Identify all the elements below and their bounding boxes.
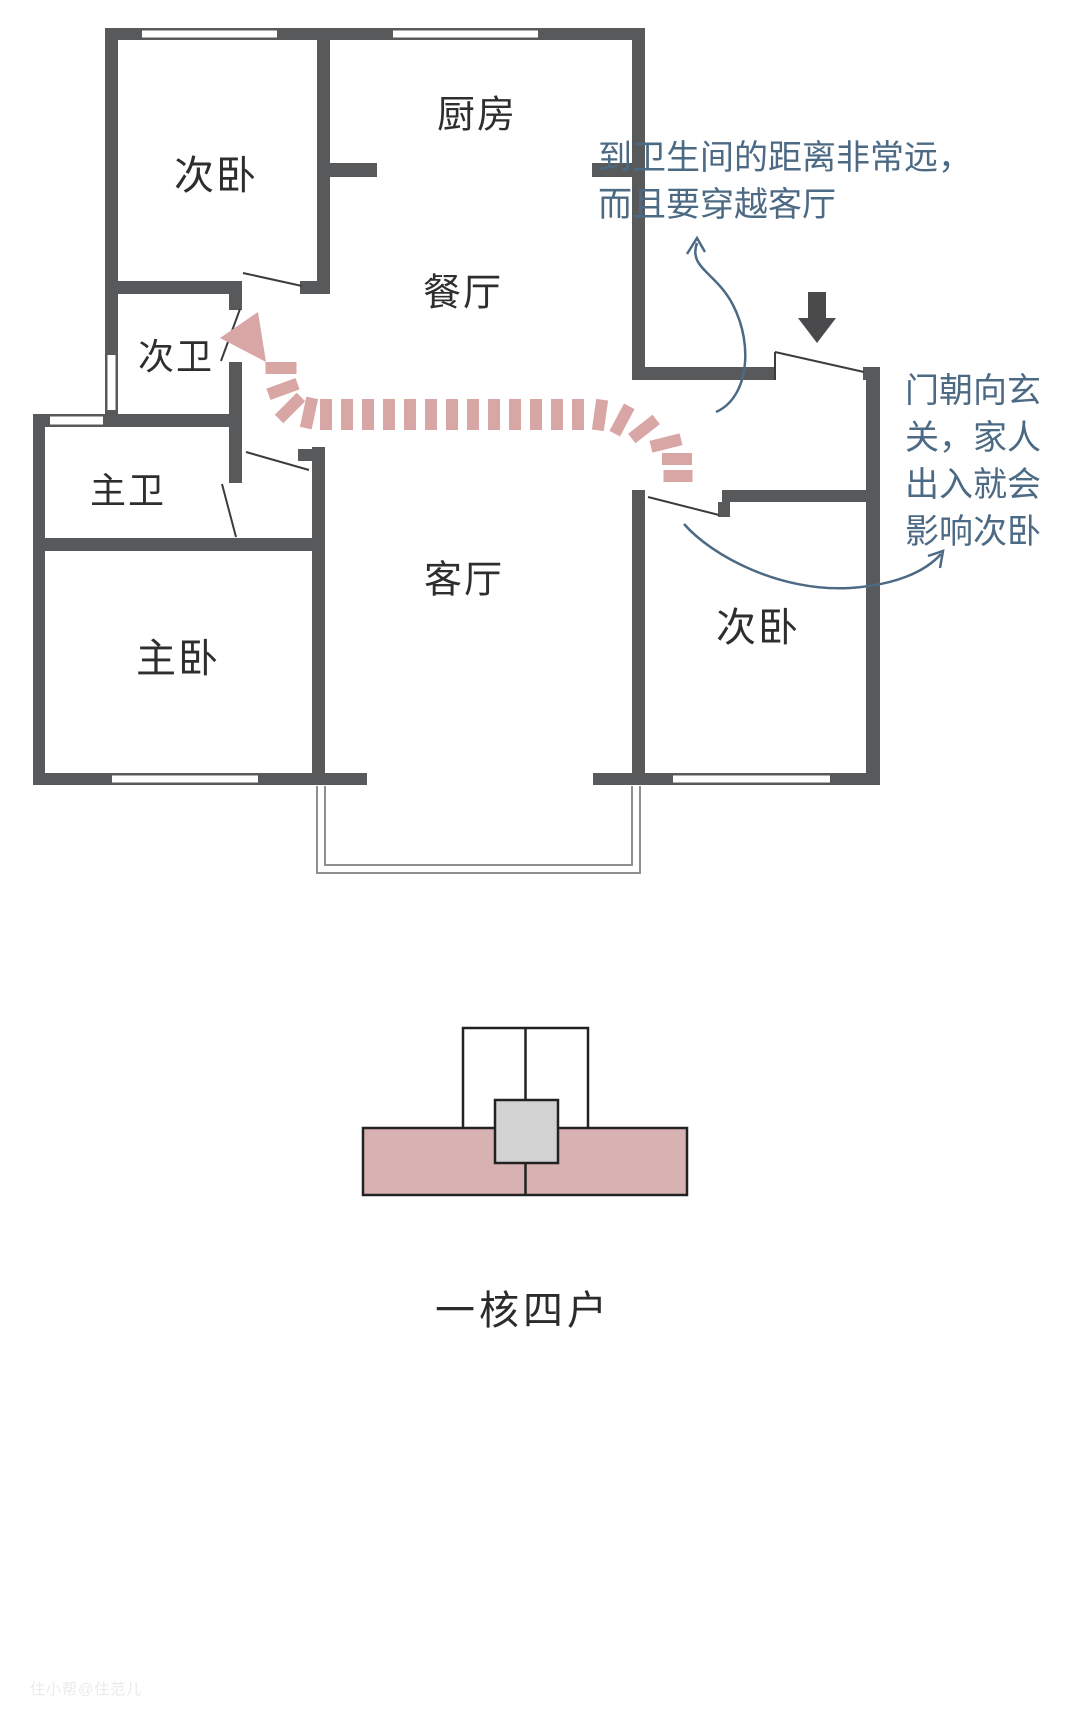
note-door-facing-line2: 关，家人 bbox=[905, 415, 1041, 462]
label-bedroom-master: 主卧 bbox=[136, 626, 220, 684]
label-bedroom-top-left: 次卧 bbox=[174, 143, 258, 201]
core-elevator-block bbox=[495, 1100, 558, 1163]
note-door-facing-line3: 出入就会 bbox=[905, 462, 1041, 509]
balcony-outline bbox=[317, 786, 640, 873]
door-bath-master bbox=[222, 484, 236, 537]
door-entry-leaf bbox=[775, 352, 864, 372]
caption-one-core-four-units: 一核四户 bbox=[435, 1278, 611, 1336]
walk-path bbox=[220, 312, 693, 482]
note-bathroom-distance-line1: 到卫生间的距离非常远， bbox=[598, 135, 972, 182]
note-door-facing-line1: 门朝向玄 bbox=[905, 368, 1041, 415]
note-bathroom-distance-line2: 而且要穿越客厅 bbox=[598, 182, 972, 229]
door-bedroom-top-left bbox=[243, 273, 302, 286]
arrow-to-bathroom-note bbox=[695, 243, 745, 412]
watermark: 住小帮@住范儿 bbox=[30, 1678, 142, 1699]
note-door-facing: 门朝向玄 关，家人 出入就会 影响次卧 bbox=[905, 368, 1041, 556]
floorplan-page: 次卧 厨房 餐厅 次卫 主卫 主卧 客厅 次卧 到卫生间的距离非常远， 而且要穿… bbox=[0, 0, 1080, 1728]
label-bedroom-right: 次卧 bbox=[716, 595, 800, 653]
label-living: 客厅 bbox=[424, 549, 504, 604]
label-dining: 餐厅 bbox=[423, 262, 503, 317]
entry-down-arrow bbox=[798, 292, 836, 343]
door-bedroom-right bbox=[648, 497, 719, 515]
arrow-to-door-note bbox=[684, 524, 941, 588]
walk-path-start-wedge bbox=[220, 312, 266, 362]
note-bathroom-distance: 到卫生间的距离非常远， 而且要穿越客厅 bbox=[598, 135, 972, 229]
label-bath-master: 主卫 bbox=[90, 462, 166, 514]
label-bath-secondary: 次卫 bbox=[138, 328, 214, 380]
label-kitchen: 厨房 bbox=[437, 84, 517, 139]
floorplan-drawing bbox=[0, 0, 1080, 1728]
core-diagram bbox=[363, 1028, 687, 1195]
note-door-facing-line4: 影响次卧 bbox=[905, 509, 1041, 556]
